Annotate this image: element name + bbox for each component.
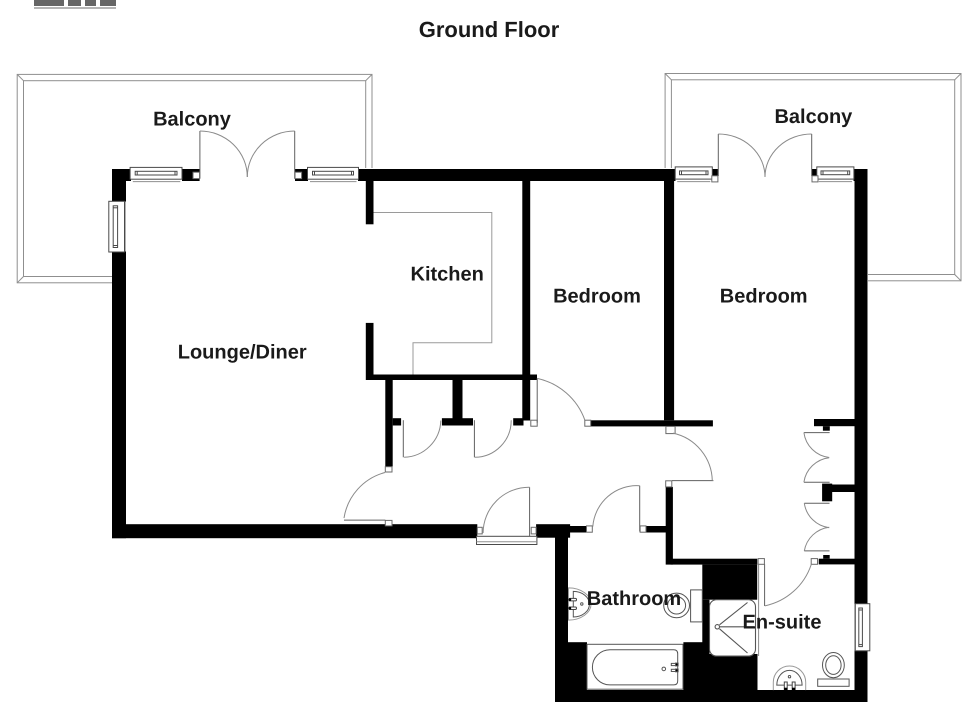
svg-text:Ground Floor: Ground Floor <box>419 17 560 42</box>
svg-text:Bedroom: Bedroom <box>553 285 641 307</box>
svg-text:En-suite: En-suite <box>743 612 822 634</box>
svg-text:Bedroom: Bedroom <box>720 285 808 307</box>
svg-text:Bathroom: Bathroom <box>587 588 681 610</box>
svg-text:Kitchen: Kitchen <box>411 264 484 286</box>
svg-text:Lounge/Diner: Lounge/Diner <box>178 342 307 364</box>
svg-text:Balcony: Balcony <box>774 106 853 128</box>
svg-text:Balcony: Balcony <box>153 108 232 130</box>
